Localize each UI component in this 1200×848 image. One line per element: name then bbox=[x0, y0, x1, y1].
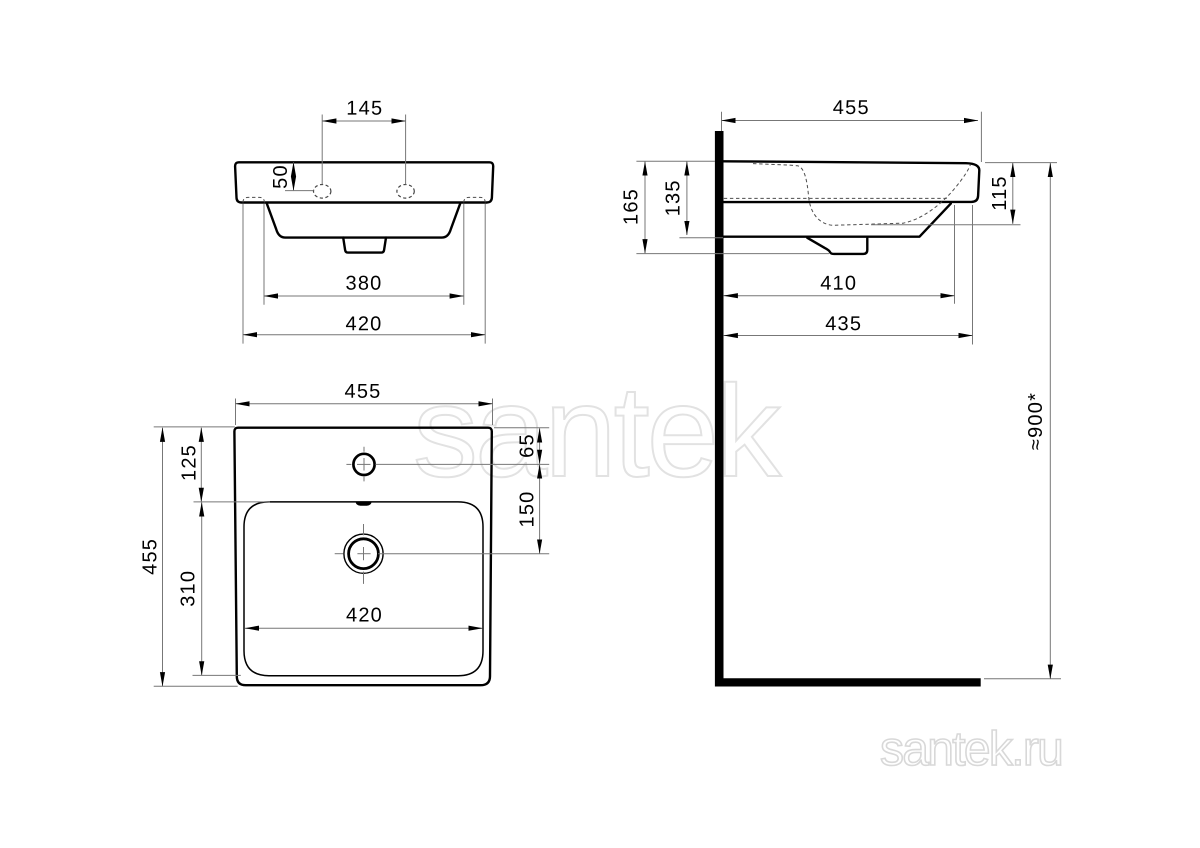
svg-text:65: 65 bbox=[516, 433, 538, 458]
svg-text:115: 115 bbox=[989, 175, 1011, 211]
svg-text:santek: santek bbox=[413, 358, 782, 504]
svg-text:165: 165 bbox=[620, 188, 642, 225]
svg-text:150: 150 bbox=[516, 491, 538, 528]
svg-text:145: 145 bbox=[346, 98, 383, 120]
svg-text:310: 310 bbox=[178, 570, 200, 607]
svg-text:santek.ru: santek.ru bbox=[880, 723, 1062, 776]
svg-text:≈900*: ≈900* bbox=[1025, 392, 1047, 450]
svg-text:135: 135 bbox=[663, 179, 685, 216]
svg-text:455: 455 bbox=[833, 97, 870, 119]
svg-text:455: 455 bbox=[139, 538, 161, 575]
svg-text:455: 455 bbox=[345, 381, 382, 403]
svg-text:50: 50 bbox=[270, 164, 292, 189]
svg-text:410: 410 bbox=[820, 273, 857, 295]
svg-text:420: 420 bbox=[346, 604, 383, 626]
svg-text:420: 420 bbox=[346, 313, 383, 335]
svg-text:125: 125 bbox=[178, 444, 200, 481]
svg-text:380: 380 bbox=[346, 273, 383, 295]
svg-text:435: 435 bbox=[825, 313, 862, 335]
